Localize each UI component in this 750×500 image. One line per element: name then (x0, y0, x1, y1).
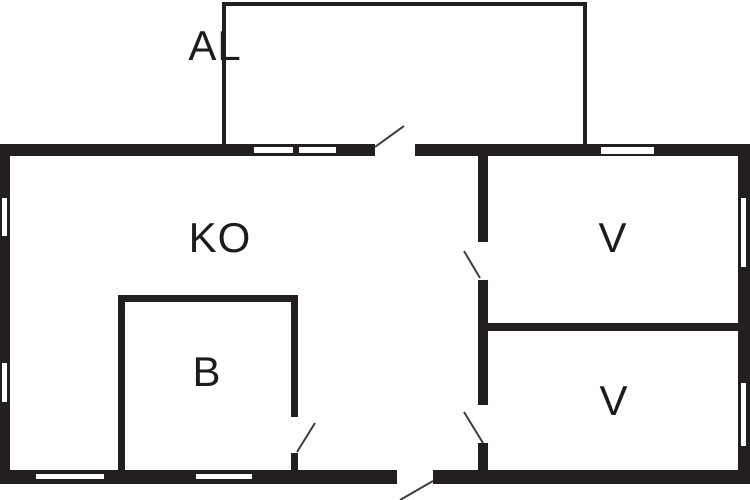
room-label-al: AL (188, 25, 241, 67)
floor-plan: ALKOBVV (0, 0, 750, 500)
room-label-v-lower: V (599, 380, 628, 422)
room-labels-layer: ALKOBVV (0, 0, 750, 500)
room-label-v-upper: V (598, 217, 627, 259)
room-label-b: B (192, 351, 221, 393)
room-label-ko: KO (189, 217, 252, 259)
